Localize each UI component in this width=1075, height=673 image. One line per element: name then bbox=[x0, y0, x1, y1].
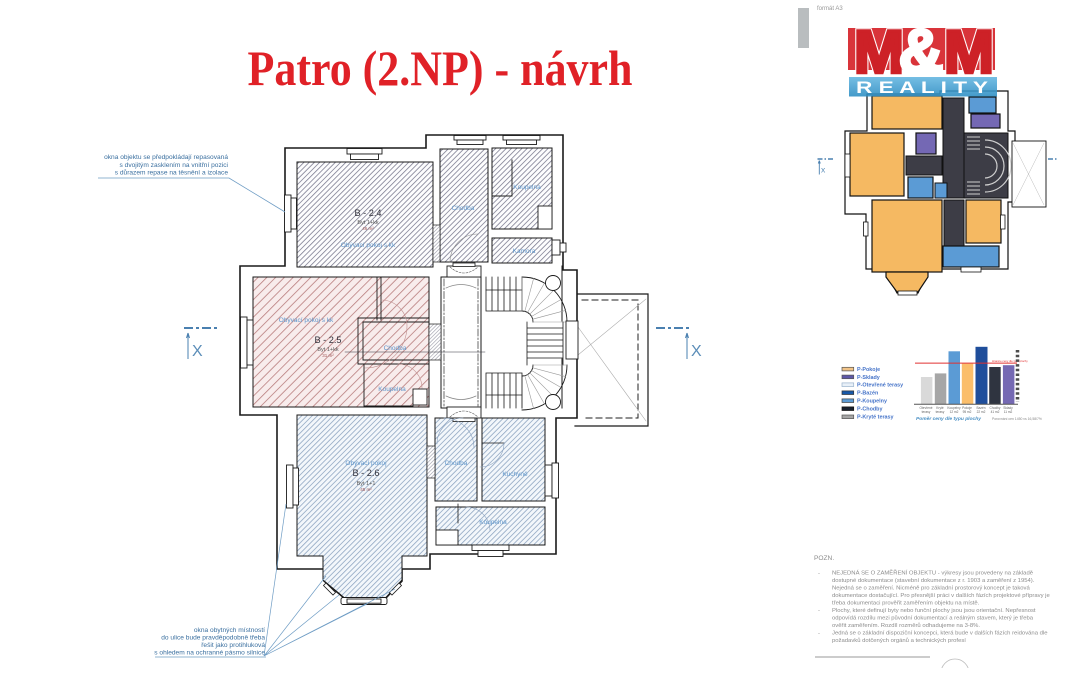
svg-text:Patro (2.NP) - návrh: Patro (2.NP) - návrh bbox=[248, 40, 633, 96]
svg-text:odpovídá rozdílu mezi původní: odpovídá rozdílu mezi původní dokumentac… bbox=[832, 615, 1034, 622]
svg-text:-: - bbox=[818, 571, 820, 577]
svg-text:41 m2: 41 m2 bbox=[991, 410, 1000, 414]
svg-text:-: - bbox=[818, 631, 820, 637]
svg-text:P-Bazén: P-Bazén bbox=[857, 391, 878, 397]
svg-text:požadavků dotčených orgánů a t: požadavků dotčených orgánů a technických… bbox=[832, 637, 966, 644]
svg-text:Koupelna: Koupelna bbox=[378, 386, 406, 393]
svg-text:45 m²: 45 m² bbox=[360, 487, 372, 492]
svg-text:X: X bbox=[691, 343, 702, 360]
svg-text:46 m²: 46 m² bbox=[362, 226, 374, 231]
svg-text:okna objektu se předpokládají: okna objektu se předpokládají repasovaná bbox=[104, 154, 228, 161]
svg-text:M: M bbox=[854, 19, 904, 86]
svg-text:Kamora: Kamora bbox=[513, 248, 536, 255]
svg-text:&: & bbox=[899, 18, 944, 87]
svg-text:POZN.: POZN. bbox=[814, 555, 834, 562]
svg-text:dokumentace dostačující. Pro p: dokumentace dostačující. Pro přesnější p… bbox=[832, 593, 1050, 599]
svg-text:Obývací pokoj s kk: Obývací pokoj s kk bbox=[279, 317, 334, 324]
svg-text:Hranice ceny dle typu plochy: Hranice ceny dle typu plochy bbox=[992, 359, 1028, 363]
svg-text:31 m²: 31 m² bbox=[322, 353, 334, 358]
svg-text:B - 2.5: B - 2.5 bbox=[314, 335, 341, 345]
svg-text:P-Pokoje: P-Pokoje bbox=[857, 367, 880, 373]
svg-text:P-Koupelny: P-Koupelny bbox=[857, 399, 887, 405]
svg-text:R E A L I T Y: R E A L I T Y bbox=[856, 79, 988, 97]
svg-text:11 m2: 11 m2 bbox=[1004, 410, 1013, 414]
svg-text:M: M bbox=[944, 19, 994, 86]
svg-text:Obývací pokoj: Obývací pokoj bbox=[345, 460, 386, 467]
svg-text:X: X bbox=[192, 343, 203, 360]
svg-text:12 m2: 12 m2 bbox=[950, 410, 959, 414]
svg-text:95 m2: 95 m2 bbox=[963, 410, 972, 414]
svg-text:řešit jako protihluková: řešit jako protihluková bbox=[201, 642, 265, 649]
svg-text:s důrazem repase na těsnění a: s důrazem repase na těsnění a izolace bbox=[115, 169, 229, 177]
svg-text:s ohledem na ochranné pásmo si: s ohledem na ochranné pásmo silnice bbox=[154, 650, 265, 657]
svg-text:B - 2.4: B - 2.4 bbox=[354, 208, 381, 218]
svg-text:B - 2.6: B - 2.6 bbox=[352, 468, 379, 478]
svg-text:P-Kryté terasy: P-Kryté terasy bbox=[857, 415, 894, 421]
svg-text:dostupné dokumentace (stavební: dostupné dokumentace (stavební dokumenta… bbox=[832, 578, 1035, 584]
svg-text:Koupelna: Koupelna bbox=[479, 519, 507, 526]
svg-text:Plochy, které definují byty ne: Plochy, které definují byty nebo funční … bbox=[832, 608, 1036, 614]
svg-text:-: - bbox=[818, 608, 820, 614]
svg-text:s dvojitým zasklením na vnitřn: s dvojitým zasklením na vnitřní pozici bbox=[120, 162, 229, 169]
svg-text:P-Otevřené terasy: P-Otevřené terasy bbox=[857, 383, 903, 389]
svg-text:Jedná se o základní dispoziční: Jedná se o základní dispoziční koncepci,… bbox=[832, 631, 1048, 637]
svg-text:Obývací pokoj s kk: Obývací pokoj s kk bbox=[341, 242, 396, 249]
svg-text:P-Chodby: P-Chodby bbox=[857, 407, 882, 413]
svg-text:Koupelna: Koupelna bbox=[513, 184, 541, 191]
svg-text:Kuchyně: Kuchyně bbox=[502, 471, 528, 478]
svg-text:Nejedná se o zaměření. Nicméně: Nejedná se o zaměření. Nicméně pro zákla… bbox=[832, 586, 1030, 592]
svg-text:P-Sklady: P-Sklady bbox=[857, 375, 880, 381]
svg-text:Porovnání cen 1450 vs 16,58/7%: Porovnání cen 1450 vs 16,58/7% bbox=[992, 417, 1042, 421]
svg-text:ověřit zaměřením. Rozdíl rozmě: ověřit zaměřením. Rozdíl rozměrů odhaduj… bbox=[832, 622, 980, 629]
svg-text:NEJEDNÁ SE O ZAMĚŘENÍ OBJEKTU: NEJEDNÁ SE O ZAMĚŘENÍ OBJEKTU - výkresy … bbox=[832, 569, 1034, 577]
svg-text:formát A3: formát A3 bbox=[817, 6, 843, 12]
svg-text:okna obytných místností: okna obytných místností bbox=[194, 627, 265, 634]
svg-text:Poměr ceny dle typu plochy: Poměr ceny dle typu plochy bbox=[916, 416, 981, 422]
svg-text:Chodba: Chodba bbox=[445, 460, 468, 467]
svg-text:třeba dokumentaci prověřit zam: třeba dokumentaci prověřit zaměřením obj… bbox=[832, 601, 980, 607]
svg-text:22 m2: 22 m2 bbox=[977, 410, 986, 414]
svg-text:terasy: terasy bbox=[936, 410, 945, 414]
svg-text:Chodba: Chodba bbox=[384, 345, 407, 352]
svg-text:do ulice bude pravděpodobně tř: do ulice bude pravděpodobně třeba bbox=[161, 635, 265, 642]
svg-text:Chodba: Chodba bbox=[452, 205, 475, 212]
svg-text:terasy: terasy bbox=[922, 410, 931, 414]
